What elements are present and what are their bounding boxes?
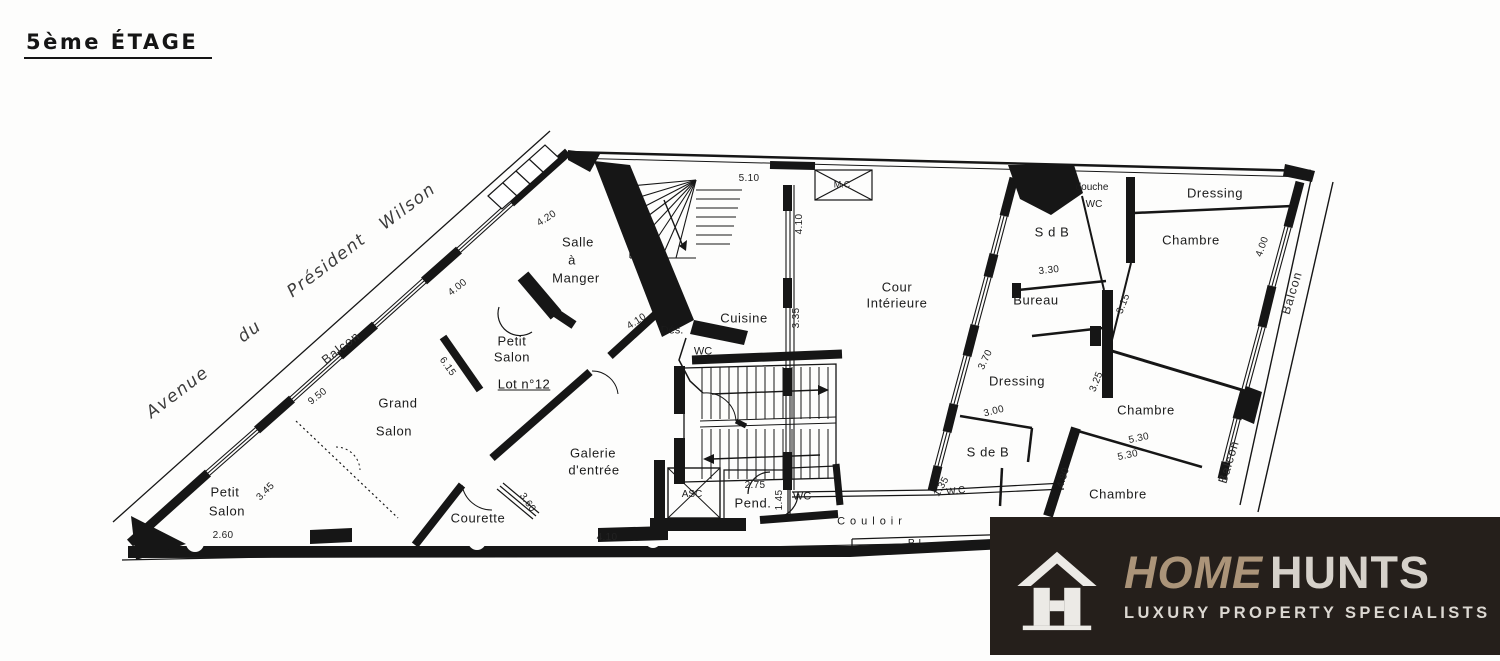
cour-right-window-wall: [932, 178, 1014, 491]
galerie-diagonal-wall: [415, 303, 668, 545]
homehunts-logo: HOMEHUNTS LUXURY PROPERTY SPECIALISTS: [990, 517, 1500, 655]
monte-charge-box: [815, 170, 872, 200]
facade-balcony-edge: [113, 131, 550, 522]
main-staircase: [674, 354, 842, 484]
fireplace: [498, 276, 574, 336]
couloir-walls: [792, 483, 1064, 497]
brand-hunts: HUNTS: [1270, 547, 1430, 598]
cuisine-wc-partition: [679, 338, 746, 426]
right-wing-walls: [960, 165, 1292, 516]
brand-wordmark: HOMEHUNTS: [1124, 550, 1491, 595]
courette-window-wall: [497, 483, 539, 519]
elevator-box: [650, 460, 746, 531]
right-balcony: [1222, 175, 1333, 512]
top-wall: [568, 150, 1315, 182]
stair-wedge-wall: [594, 161, 748, 345]
house-logo-icon: [1012, 541, 1102, 631]
brand-home: HOME: [1124, 547, 1263, 598]
facade-wall: [130, 145, 568, 543]
logo-tagline: LUXURY PROPERTY SPECIALISTS: [1124, 604, 1491, 623]
floorplan-page: 5ème ÉTAGE: [0, 0, 1500, 661]
